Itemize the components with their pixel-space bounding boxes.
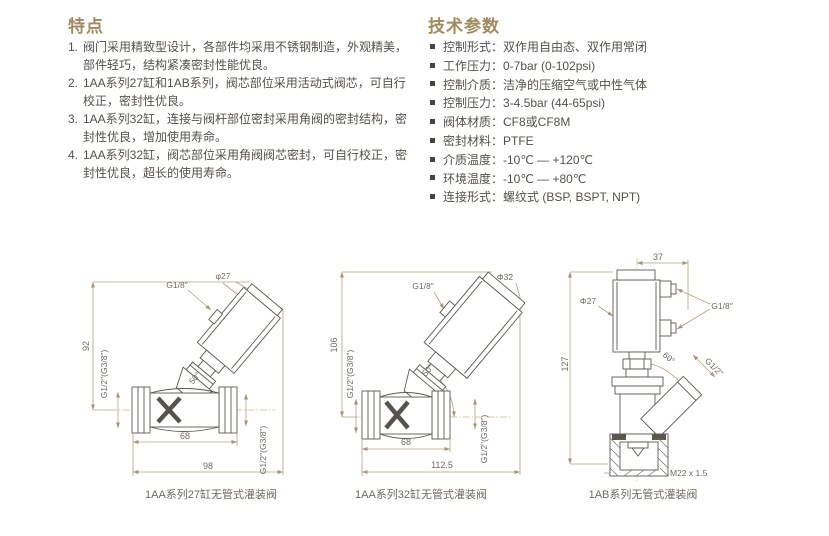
- spec-value: 螺纹式 (BSP, BSPT, NPT): [503, 188, 640, 207]
- square-bullet-icon: [430, 63, 435, 68]
- dim-actuator-diameter: Φ32: [497, 272, 514, 282]
- spec-value: -10℃ — +80℃: [503, 170, 586, 189]
- specs-title: 技术参数: [428, 12, 500, 37]
- pilot-port-knob: [660, 281, 671, 297]
- dim-actuator-diameter: Φ27: [580, 296, 597, 306]
- dim-pilot-port: G1/8": [166, 280, 187, 290]
- dim-outlet-port: G1/2"(G3/8"): [258, 426, 268, 475]
- dim-inlet-port: G1/2"(G3/8"): [99, 350, 109, 399]
- spec-item: 连接形式：螺纹式 (BSP, BSPT, NPT): [428, 188, 798, 207]
- spec-item: 环境温度：-10℃ — +80℃: [428, 170, 798, 189]
- feature-text: 1AA系列27缸和1AB系列，阀芯部位采用活动式阀芯，可自行校正，密封性优良。: [83, 74, 416, 110]
- feature-item: 3. 1AA系列32缸，连接与阀杆部位密封采用角阀的密封结构，密封性优良，增加使…: [68, 110, 416, 146]
- feature-item: 4. 1AA系列32缸，阀芯部位采用角阀阀芯密封，可自行校正，密封性优良，超长的…: [68, 146, 416, 182]
- spec-label: 阀体材质：: [443, 113, 503, 132]
- dim-pilot-ports: G1/8": [711, 301, 732, 311]
- drawing-valve-1ab: 37 Φ27 G1/8" 127 60° G1/2" M22 x 1.5: [560, 252, 825, 486]
- dim-height: 92: [81, 341, 91, 351]
- spec-label: 密封材料：: [443, 132, 503, 151]
- valve-body: [132, 387, 237, 433]
- spec-value: 双作用自由态、双作用常闭: [503, 38, 647, 57]
- feature-number: 3.: [68, 110, 83, 146]
- pilot-port-knob: [660, 320, 671, 336]
- feature-text: 1AA系列32缸，阀芯部位采用角阀阀芯密封，可自行校正，密封性优良，超长的使用寿…: [83, 146, 416, 182]
- square-bullet-icon: [430, 44, 435, 49]
- spec-item: 控制压力：3-4.5bar (44-65psi): [428, 94, 798, 113]
- dim-body-length: 68: [401, 437, 411, 447]
- drawing-caption: 1AB系列无管式灌装阀: [589, 486, 698, 502]
- square-bullet-icon: [430, 119, 435, 124]
- spec-label: 工作压力：: [443, 57, 503, 76]
- dim-overall-length: 112.5: [431, 460, 453, 470]
- spec-item: 控制形式：双作用自由态、双作用常闭: [428, 38, 798, 57]
- spec-value: -10℃ — +120℃: [503, 151, 593, 170]
- dim-actuator-diameter: φ27: [216, 271, 231, 281]
- specs-list: 控制形式：双作用自由态、双作用常闭 工作压力：0-7bar (0-102psi)…: [428, 38, 798, 207]
- spec-item: 控制介质：洁净的压缩空气或中性气体: [428, 76, 798, 95]
- spec-value: CF8或CF8M: [503, 113, 570, 132]
- dim-outlet-port: G1/2": [703, 356, 725, 378]
- valve-32-svg: 106 G1/8" Φ32 G1/2"(G3/8") 50° 68 112.5 …: [320, 252, 575, 486]
- drawing-valve-27: 92 G1/8" φ27 G1/2"(G3/8") 50° 68 98 G1/2…: [70, 252, 320, 486]
- spec-label: 控制介质：: [443, 76, 503, 95]
- dim-outlet-port: G1/2"(G3/8"): [479, 415, 489, 464]
- drawing-caption: 1AA系列32缸无管式灌装阀: [355, 486, 487, 502]
- square-bullet-icon: [430, 81, 435, 86]
- seal-ring: [612, 434, 626, 440]
- spec-label: 环境温度：: [443, 170, 503, 189]
- spec-item: 介质温度：-10℃ — +120℃: [428, 151, 798, 170]
- spec-value: 3-4.5bar (44-65psi): [503, 94, 605, 113]
- spec-item: 阀体材质：CF8或CF8M: [428, 113, 798, 132]
- dim-height: 127: [560, 356, 570, 371]
- feature-number: 4.: [68, 146, 83, 182]
- spec-label: 控制压力：: [443, 94, 503, 113]
- feature-text: 阀门采用精致型设计，各部件均采用不锈钢制造，外观精美，部件轻巧，结构紧凑密封性能…: [83, 38, 416, 74]
- dim-height: 106: [329, 337, 339, 352]
- spec-label: 控制形式：: [443, 38, 503, 57]
- spec-value: PTFE: [503, 132, 534, 151]
- spec-value: 洁净的压缩空气或中性气体: [503, 76, 647, 95]
- dim-overall-length: 98: [203, 461, 213, 471]
- valve-1ab-svg: 37 Φ27 G1/8" 127 60° G1/2" M22 x 1.5: [560, 252, 825, 486]
- valve-body: [362, 391, 450, 439]
- features-title: 特点: [68, 12, 104, 37]
- dim-inlet-port: G1/2"(G3/8"): [345, 350, 355, 399]
- feature-number: 2.: [68, 74, 83, 110]
- square-bullet-icon: [430, 194, 435, 199]
- dim-top-width: 37: [653, 252, 663, 262]
- dim-body-length: 68: [180, 431, 190, 441]
- valve-body: [610, 352, 702, 476]
- valve-27-svg: 92 G1/8" φ27 G1/2"(G3/8") 50° 68 98 G1/2…: [70, 252, 320, 486]
- features-list: 1. 阀门采用精致型设计，各部件均采用不锈钢制造，外观精美，部件轻巧，结构紧凑密…: [68, 38, 416, 182]
- square-bullet-icon: [430, 138, 435, 143]
- actuator: [613, 270, 676, 352]
- spec-value: 0-7bar (0-102psi): [503, 57, 595, 76]
- square-bullet-icon: [430, 100, 435, 105]
- spec-label: 连接形式：: [443, 188, 503, 207]
- dim-pilot-port: G1/8": [412, 281, 433, 291]
- spec-label: 介质温度：: [443, 151, 503, 170]
- dim-angle: 60°: [661, 350, 677, 366]
- drawing-caption: 1AA系列27缸无管式灌装阀: [145, 486, 277, 502]
- spec-item: 密封材料：PTFE: [428, 132, 798, 151]
- datasheet-page: 特点 1. 阀门采用精致型设计，各部件均采用不锈钢制造，外观精美，部件轻巧，结构…: [0, 0, 829, 536]
- feature-item: 2. 1AA系列27缸和1AB系列，阀芯部位采用活动式阀芯，可自行校正，密封性优…: [68, 74, 416, 110]
- square-bullet-icon: [430, 175, 435, 180]
- feature-text: 1AA系列32缸，连接与阀杆部位密封采用角阀的密封结构，密封性优良，增加使用寿命…: [83, 110, 416, 146]
- spec-item: 工作压力：0-7bar (0-102psi): [428, 57, 798, 76]
- square-bullet-icon: [430, 157, 435, 162]
- feature-number: 1.: [68, 38, 83, 74]
- feature-item: 1. 阀门采用精致型设计，各部件均采用不锈钢制造，外观精美，部件轻巧，结构紧凑密…: [68, 38, 416, 74]
- dim-bottom-thread: M22 x 1.5: [670, 468, 708, 478]
- drawing-valve-32: 106 G1/8" Φ32 G1/2"(G3/8") 50° 68 112.5 …: [320, 252, 575, 486]
